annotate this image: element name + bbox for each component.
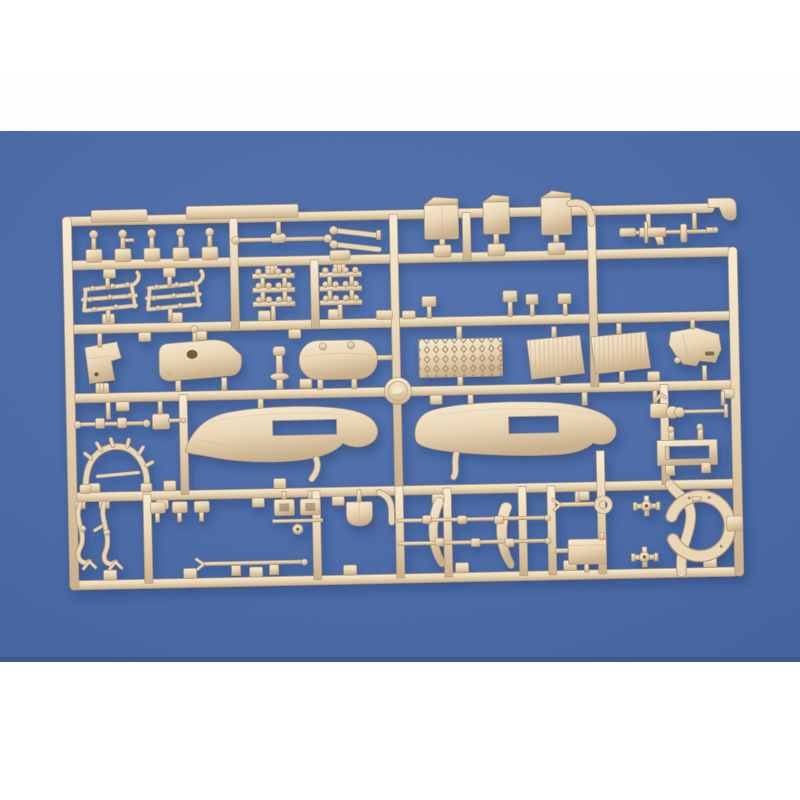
- sprue-photo-canvas: [0, 0, 800, 800]
- product-photo: [0, 0, 800, 800]
- part-logo-roundel: [384, 377, 412, 405]
- part-small-brackets: [150, 501, 209, 522]
- backdrop-edge-shadow: [0, 657, 800, 662]
- white-band-bottom: [0, 662, 800, 800]
- white-band-top: [0, 0, 800, 131]
